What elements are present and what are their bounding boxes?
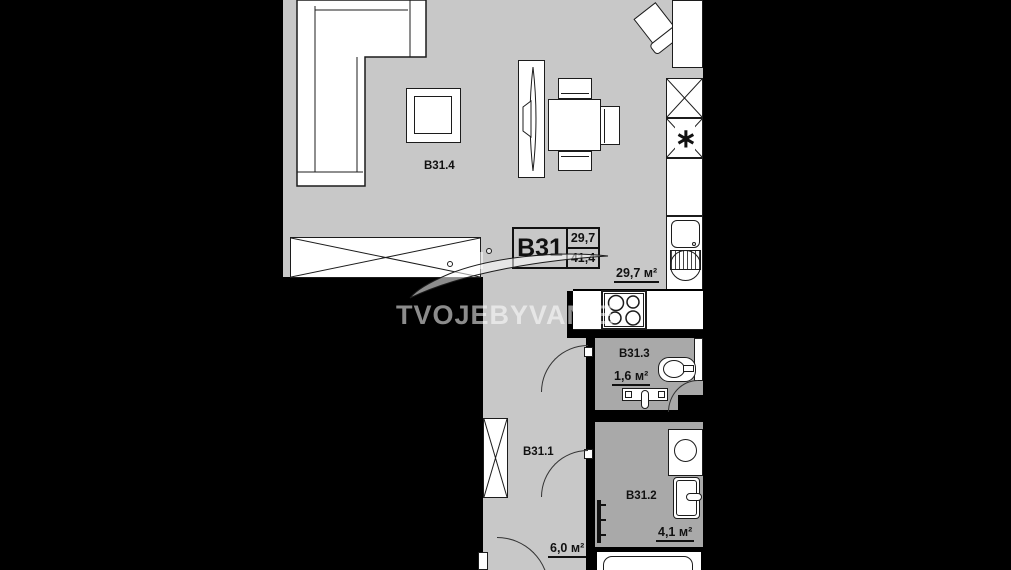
kitchen-cabinet (666, 158, 703, 216)
bathroom-label: B31.2 (626, 490, 657, 502)
bathtub (597, 552, 701, 570)
sideboard (290, 237, 481, 278)
washing-machine (668, 429, 703, 476)
wall-under-sideboard (283, 277, 483, 291)
unit-area-bottom: 41,4 (568, 249, 598, 267)
dining-chair-top (558, 78, 592, 99)
coffee-table-top (414, 96, 452, 134)
sink-drain (692, 242, 696, 246)
hob (601, 290, 647, 330)
living-room-label: B31.4 (424, 160, 455, 172)
hall-label: B31.1 (523, 446, 554, 458)
toilet-bowl (663, 360, 685, 378)
unit-code: B31 (514, 229, 568, 267)
sink-unit (666, 216, 703, 291)
unit-area-top: 29,7 (568, 229, 598, 249)
entrance-door-niche (478, 552, 488, 570)
wc-area-label: 1,6 м² (612, 369, 650, 386)
unit-card: B31 29,7 41,4 (512, 227, 600, 269)
freezer-star-icon: ∗ (675, 123, 695, 153)
dining-chair-bottom (558, 151, 592, 171)
wardrobe (483, 418, 508, 498)
wall-right-outer (703, 0, 713, 570)
radiator-cap-left (625, 391, 632, 398)
bathtub-inner (603, 556, 693, 570)
tall-cabinet (672, 0, 703, 68)
toilet-flush (683, 365, 694, 372)
radiator-cap-right (658, 391, 665, 398)
dining-chair-right (600, 106, 620, 145)
coffee-table (406, 88, 461, 143)
bathroom-door-leaf (597, 500, 601, 543)
washbasin-faucet (686, 493, 702, 501)
toilet (656, 355, 704, 383)
kitchen-area-label: 29,7 м² (614, 266, 659, 283)
radiator (622, 388, 668, 410)
bathroom-area-label: 4,1 м² (656, 525, 694, 542)
freezer: ∗ (666, 118, 703, 158)
floor-plan: ∗ (0, 0, 1011, 570)
wc-label: B31.3 (619, 348, 650, 360)
hall-area-label: 6,0 м² (548, 541, 586, 558)
radiator-valve (641, 390, 649, 409)
washing-machine-drum (674, 439, 697, 462)
sink-drainer-circle (670, 250, 701, 281)
tv-board (518, 60, 545, 178)
dining-table (548, 99, 601, 151)
fridge (666, 78, 703, 118)
tv-bracket (523, 101, 531, 137)
